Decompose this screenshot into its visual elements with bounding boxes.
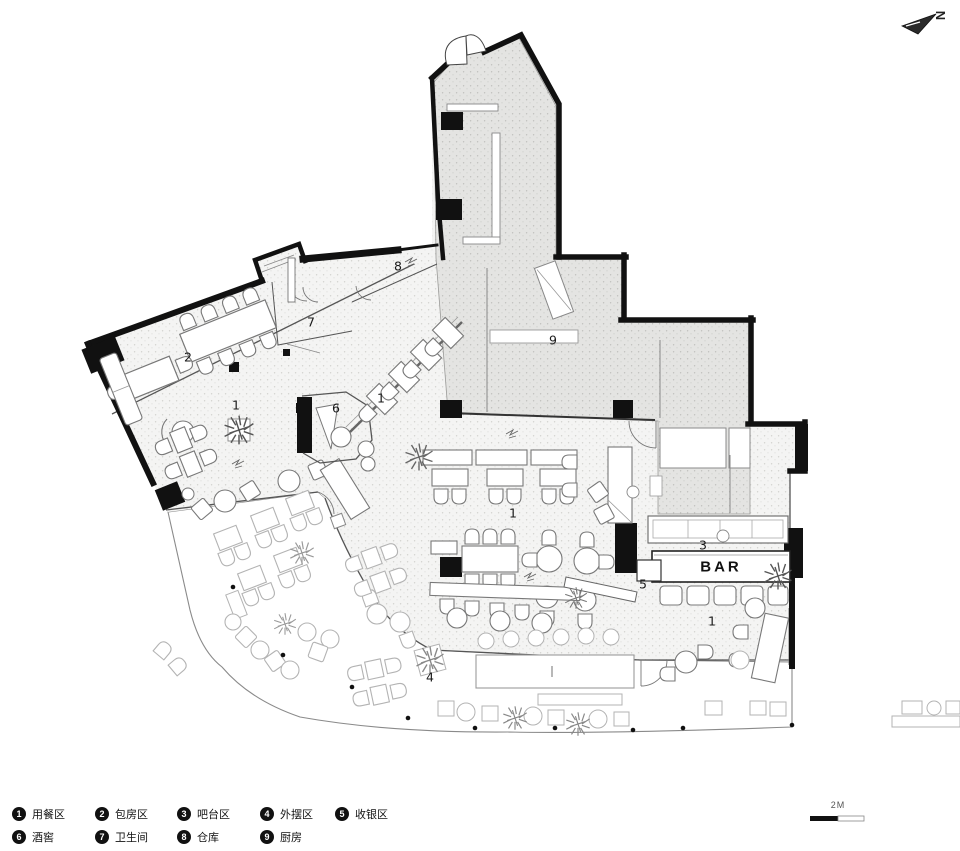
legend-label-restroom: 卫生间 (115, 829, 148, 845)
legend-label-bar: 吧台区 (197, 806, 230, 822)
legend-label-private-room: 包房区 (115, 806, 148, 822)
legend-item-restroom: 7 卫生间 (95, 829, 148, 845)
floor-plan-page: 8 7 9 2 1 1 6 1 3 5 1 4 BAR N 2M 1 用餐区 2… (0, 0, 960, 851)
zone-label-2: 2 (184, 350, 192, 365)
legend-item-dining: 1 用餐区 (12, 806, 65, 822)
floor-plan-drawing (0, 0, 960, 851)
legend-num-2: 2 (95, 807, 109, 821)
zone-label-4: 4 (426, 670, 434, 685)
zone-label-8: 8 (394, 259, 402, 274)
bar-counter-label: BAR (700, 559, 742, 576)
zone-label-1c: 1 (509, 506, 517, 521)
legend-item-outdoor: 4 外摆区 (260, 806, 313, 822)
north-letter: N (933, 11, 948, 20)
floor-fills (88, 35, 805, 732)
zone-label-6: 6 (332, 401, 340, 416)
zone-label-3: 3 (699, 538, 707, 553)
legend-label-outdoor: 外摆区 (280, 806, 313, 822)
legend-label-storage: 仓库 (197, 829, 219, 845)
legend-item-bar: 3 吧台区 (177, 806, 230, 822)
zone-label-5: 5 (639, 577, 647, 592)
north-arrow-icon (902, 14, 936, 34)
zone-label-1a: 1 (232, 398, 240, 413)
legend-label-dining: 用餐区 (32, 806, 65, 822)
zone-label-1d: 1 (708, 614, 716, 629)
legend-item-kitchen: 9 厨房 (260, 829, 302, 845)
zone-label-1b: 1 (377, 391, 385, 406)
legend-num-3: 3 (177, 807, 191, 821)
legend-num-6: 6 (12, 830, 26, 844)
legend-num-1: 1 (12, 807, 26, 821)
legend-num-9: 9 (260, 830, 274, 844)
legend-num-4: 4 (260, 807, 274, 821)
legend-num-8: 8 (177, 830, 191, 844)
legend-item-wine-cellar: 6 酒窖 (12, 829, 54, 845)
legend-num-5: 5 (335, 807, 349, 821)
legend-item-storage: 8 仓库 (177, 829, 219, 845)
legend-label-cashier: 收银区 (355, 806, 388, 822)
legend-label-wine-cellar: 酒窖 (32, 829, 54, 845)
legend-item-cashier: 5 收银区 (335, 806, 388, 822)
scale-label: 2M (822, 800, 854, 810)
legend-label-kitchen: 厨房 (280, 829, 302, 845)
legend-num-7: 7 (95, 830, 109, 844)
legend-item-private-room: 2 包房区 (95, 806, 148, 822)
zone-label-9: 9 (549, 333, 557, 348)
scale-bar (810, 816, 864, 821)
zone-label-7: 7 (307, 315, 315, 330)
